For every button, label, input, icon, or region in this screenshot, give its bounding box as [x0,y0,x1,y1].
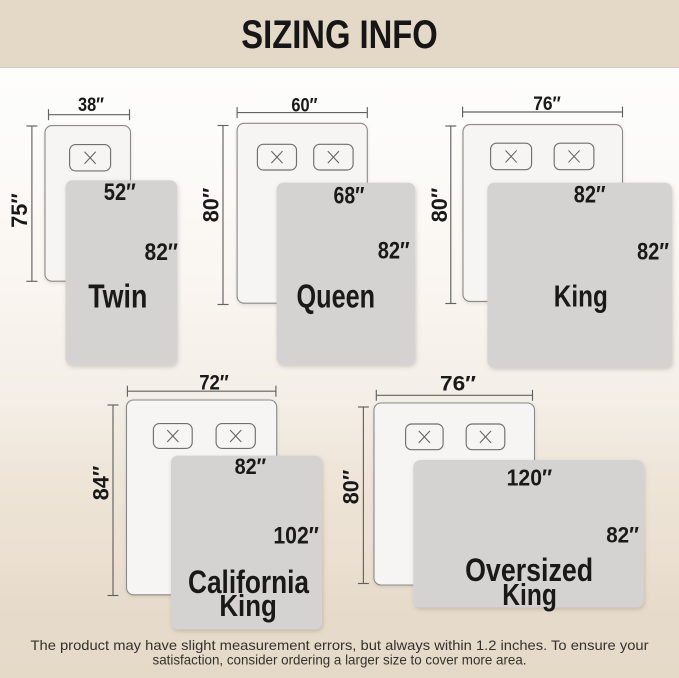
svg-text:King: King [219,588,277,623]
svg-text:satisfaction, consider orderin: satisfaction, consider ordering a larger… [153,653,527,668]
svg-text:82″: 82″ [378,238,410,265]
svg-text:52″: 52″ [104,179,136,206]
svg-text:82″: 82″ [637,238,669,265]
svg-text:68″: 68″ [334,183,365,210]
svg-text:76″: 76″ [533,93,561,115]
svg-text:76″: 76″ [440,372,476,396]
svg-text:Queen: Queen [297,278,376,315]
svg-text:80″: 80″ [427,187,452,222]
svg-text:80″: 80″ [339,469,364,504]
svg-text:King: King [502,577,557,612]
svg-text:Twin: Twin [88,278,147,315]
svg-text:75″: 75″ [7,193,32,228]
svg-text:38″: 38″ [78,94,104,116]
svg-text:102″: 102″ [273,523,319,550]
svg-text:SIZING INFO: SIZING INFO [241,13,438,57]
svg-text:The product may have slight me: The product may have slight measurement … [31,638,649,653]
svg-text:84″: 84″ [89,465,114,500]
svg-text:120″: 120″ [507,465,553,491]
svg-text:72″: 72″ [199,372,229,395]
svg-text:82″: 82″ [145,239,179,266]
svg-text:King: King [554,280,608,314]
svg-text:82″: 82″ [235,454,267,479]
svg-text:82″: 82″ [574,181,606,208]
svg-text:82″: 82″ [606,523,639,548]
svg-text:80″: 80″ [199,187,224,222]
svg-text:60″: 60″ [291,95,317,117]
